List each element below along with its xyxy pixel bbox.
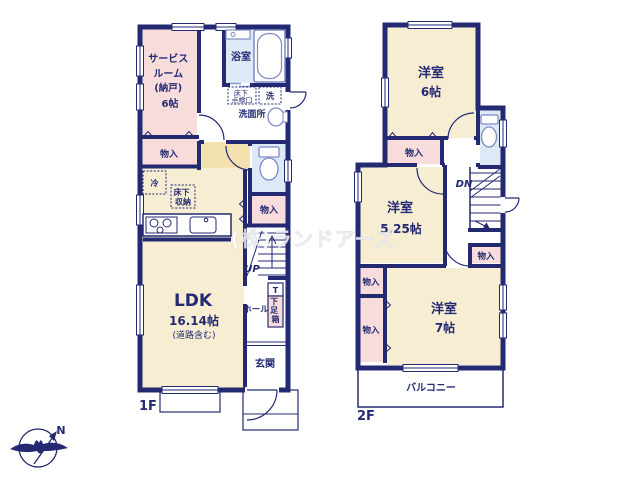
stair-door-opening xyxy=(500,197,507,213)
floorplan-drawing: サービス ルーム (納戸) 6帖 浴室 床下 点検口 洗 洗面所 物入 冷 床下… xyxy=(0,0,640,480)
window xyxy=(355,172,362,202)
window xyxy=(408,22,452,29)
stairs-up-label: UP xyxy=(244,264,260,275)
hall-label: ホール xyxy=(243,305,269,315)
toilet1f-tank-icon xyxy=(259,147,279,157)
ldk-note-label: (道路含む) xyxy=(172,329,215,341)
storage-n-label: 物入 xyxy=(405,147,423,159)
entrance-step-lines xyxy=(245,342,286,346)
storage-w-upper-label: 物入 xyxy=(362,277,380,288)
floorplan-page: サービス ルーム (納戸) 6帖 浴室 床下 点検口 洗 洗面所 物入 冷 床下… xyxy=(0,0,640,480)
bath-counter-icon xyxy=(226,30,250,39)
bedroom525-label: 洋室 xyxy=(387,200,413,216)
compass: N xyxy=(10,424,68,467)
window xyxy=(162,387,218,394)
kitchen-sink-icon xyxy=(190,217,216,233)
ldk-size-label: 16.14帖 xyxy=(169,313,219,328)
washbasin-tap-icon xyxy=(283,112,288,122)
bathtub-inner-icon xyxy=(258,34,282,79)
storage-e-label: 物入 xyxy=(260,204,278,216)
door-arc xyxy=(444,240,470,266)
ldk-floor xyxy=(142,168,244,388)
bath-sliding-door-icon xyxy=(230,84,250,87)
floor2-label: 2F xyxy=(357,409,375,424)
toilet1f-bowl-icon xyxy=(260,158,278,180)
window xyxy=(500,120,507,147)
balcony-label: バルコニー xyxy=(406,382,456,394)
entrance-label: 玄関 xyxy=(255,357,275,370)
floor2-fixtures xyxy=(481,115,498,147)
bedroom6-size-label: 6帖 xyxy=(421,84,441,99)
toilet2f-bowl-icon xyxy=(482,127,497,147)
window xyxy=(500,313,507,338)
toilet2f-tank-icon xyxy=(481,115,498,124)
window xyxy=(403,365,458,372)
bedroom7-label: 洋室 xyxy=(431,301,457,317)
door-arc xyxy=(199,115,224,140)
window xyxy=(172,24,204,31)
storage-e2-label: 物入 xyxy=(477,251,495,262)
entrance-porch xyxy=(243,390,298,430)
window xyxy=(137,46,144,76)
window xyxy=(382,78,389,107)
stairs-down-label: DN xyxy=(456,179,473,190)
terrace-step xyxy=(160,392,220,412)
window xyxy=(137,84,144,110)
door-arc xyxy=(505,198,519,212)
side-door-opening xyxy=(285,92,292,110)
bedroom6-label: 洋室 xyxy=(418,65,444,81)
compass-north-label: N xyxy=(56,424,65,437)
washroom-label: 洗面所 xyxy=(238,108,265,120)
bedroom7-size-label: 7帖 xyxy=(435,320,455,335)
shoe-box-label: 下 足 箱 xyxy=(270,297,281,324)
window xyxy=(285,160,292,182)
underfloor-storage-label: 床下 収納 xyxy=(174,187,193,207)
refrigerator-label: 冷 xyxy=(151,178,159,188)
ldk-label: LDK xyxy=(174,291,213,311)
washbasin-icon xyxy=(268,108,284,126)
inspection-hatch-label: 床下 点検口 xyxy=(232,89,253,105)
window xyxy=(137,285,144,335)
shoe-box-tag: T xyxy=(273,286,279,295)
bedroom6-floor xyxy=(387,27,476,138)
stairs-2f xyxy=(470,169,501,229)
bathroom-label: 浴室 xyxy=(231,50,251,63)
window xyxy=(500,285,507,310)
storage-w-lower-label: 物入 xyxy=(362,325,380,336)
storage-nw-label: 物入 xyxy=(160,148,178,160)
side-door-arc xyxy=(290,92,306,108)
watermark: (株)ランドアーズ xyxy=(230,227,395,251)
floor1-label: 1F xyxy=(139,399,157,414)
washer-label: 洗 xyxy=(266,91,275,102)
floor2-plan: 洋室 6帖 物入 洋室 5.25帖 DN 物入 物入 物入 洋室 7帖 バルコニ… xyxy=(355,22,520,425)
corridor-floor xyxy=(200,142,250,170)
